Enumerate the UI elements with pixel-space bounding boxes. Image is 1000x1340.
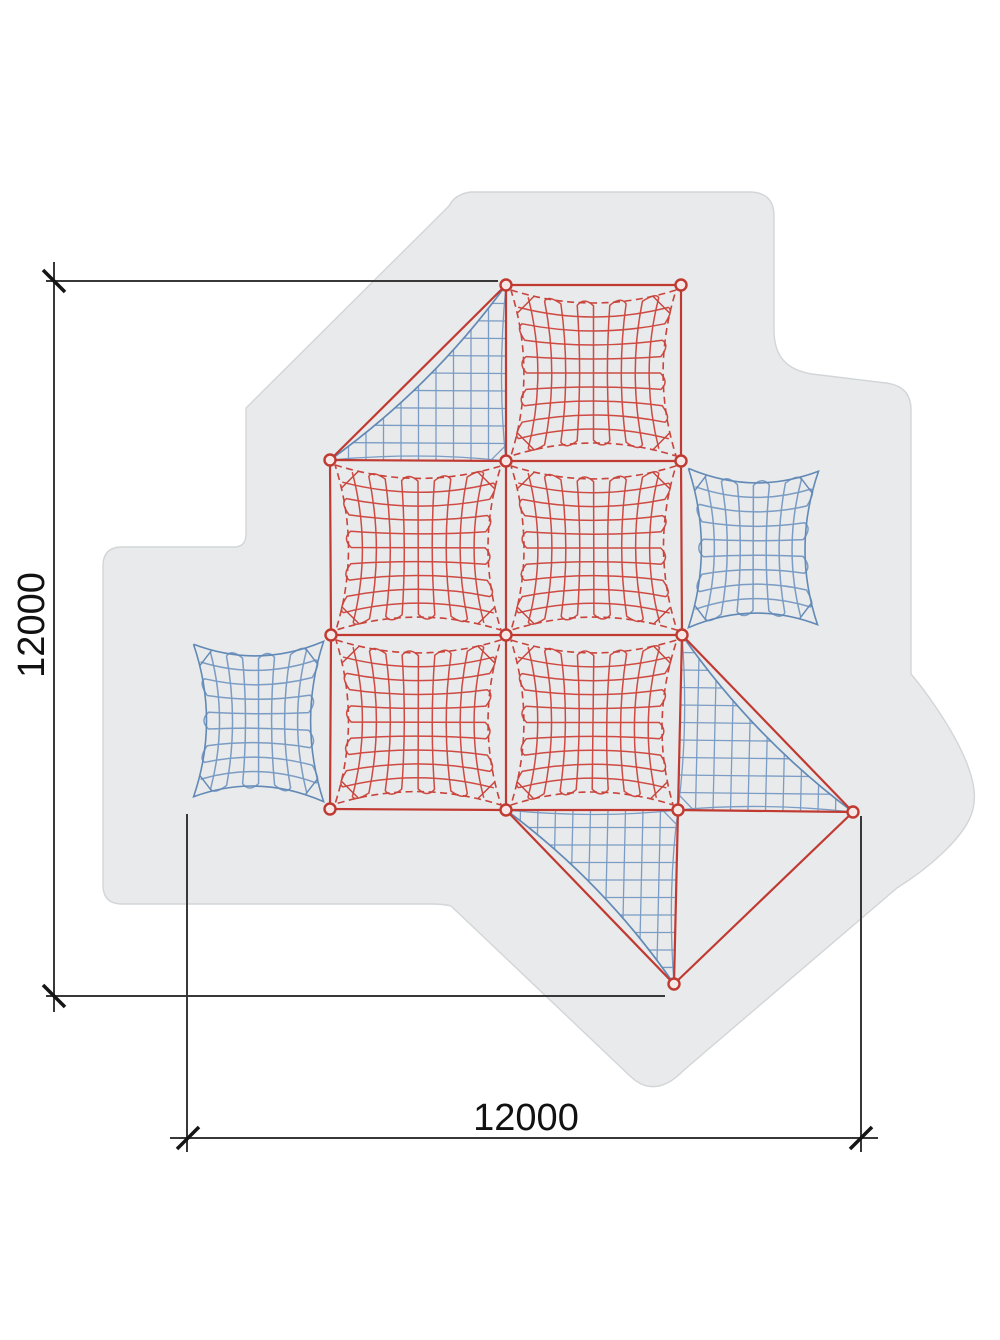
- rope-node: [501, 630, 512, 641]
- vertical-dimension-label: 12000: [11, 572, 53, 678]
- rope-node: [325, 804, 336, 815]
- net-plan-drawing: 1200012000: [0, 0, 1000, 1340]
- rope-line: [330, 809, 506, 810]
- rope-node: [501, 456, 512, 467]
- rope-line: [330, 635, 331, 809]
- rope-node: [673, 805, 684, 816]
- rope-node: [677, 630, 688, 641]
- rope-node: [326, 630, 337, 641]
- rope-node: [676, 280, 687, 291]
- rope-node: [501, 280, 512, 291]
- drawing-canvas: 1200012000: [0, 0, 1000, 1340]
- rope-line: [330, 460, 331, 635]
- rope-node: [669, 979, 680, 990]
- rope-node: [325, 455, 336, 466]
- horizontal-dimension-label: 12000: [473, 1097, 579, 1139]
- rope-line: [330, 460, 506, 461]
- rope-node: [501, 805, 512, 816]
- rope-line: [681, 461, 682, 635]
- rope-node: [848, 807, 859, 818]
- rope-node: [676, 456, 687, 467]
